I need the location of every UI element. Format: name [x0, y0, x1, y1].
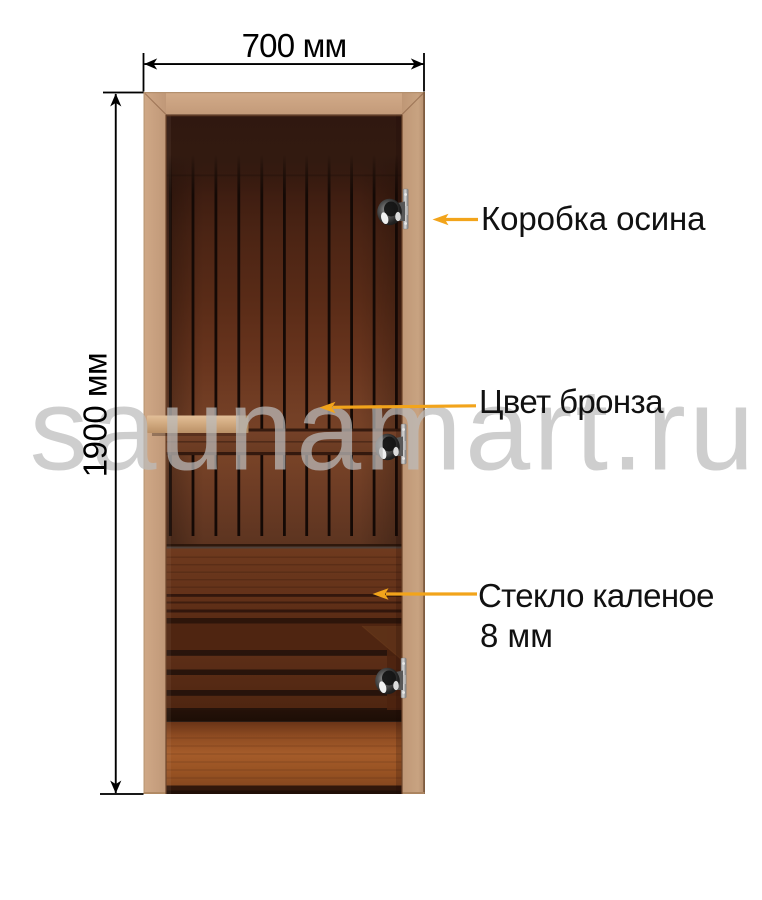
svg-text:8 мм: 8 мм — [480, 617, 553, 654]
svg-text:Цвет бронза: Цвет бронза — [479, 383, 664, 420]
svg-text:1900 мм: 1900 мм — [77, 353, 114, 477]
svg-text:Коробка осина: Коробка осина — [481, 200, 706, 237]
svg-text:700 мм: 700 мм — [242, 27, 347, 64]
svg-text:Стекло каленое: Стекло каленое — [478, 577, 714, 614]
